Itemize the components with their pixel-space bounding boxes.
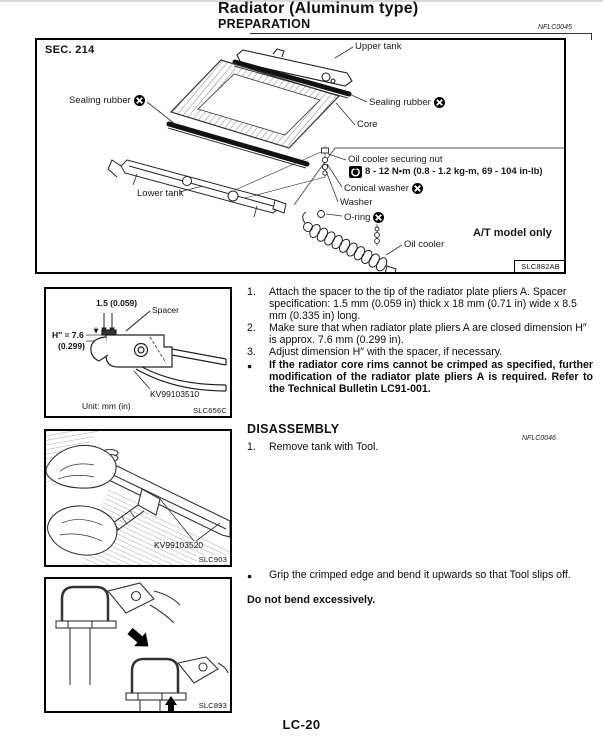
tool-number-label: KV99103520: [154, 540, 203, 550]
figure-pliers-spacer: 1.5 (0.059) Spacer H″ = 7.6 (0.299) KV99…: [44, 287, 232, 418]
step-text: Attach the spacer to the tip of the radi…: [269, 286, 593, 322]
bullet: ●: [247, 569, 269, 582]
figure-remove-tank: KV99103520 SLC903: [44, 429, 232, 567]
step-number: 1.: [247, 441, 269, 453]
label-at-model-only: A/T model only: [473, 228, 552, 238]
unit-note: Unit: mm (in): [82, 401, 131, 411]
bullet: ●: [247, 359, 269, 395]
label-o-ring: O-ring: [344, 212, 384, 223]
figure-code: SLC882AB: [514, 260, 564, 272]
label-core: Core: [357, 120, 378, 130]
torque-spec-row: 8 - 12 N•m (0.8 - 1.2 kg-m, 69 - 104 in-…: [349, 166, 543, 178]
replace-part-icon: [434, 97, 445, 108]
step-number: 1.: [247, 286, 269, 322]
page-number: LC-20: [0, 717, 603, 732]
spacer-label: Spacer: [152, 305, 179, 315]
bend-edge-art: [46, 579, 230, 711]
label-upper-tank: Upper tank: [355, 42, 401, 52]
section-code: NFLC0045: [538, 24, 572, 31]
replace-part-icon: [373, 212, 384, 223]
dimension-label: 1.5 (0.059): [96, 298, 137, 308]
replace-part-icon: [134, 95, 145, 106]
lower-tank-art: [108, 160, 286, 217]
step-text: Remove tank with Tool.: [269, 441, 593, 453]
section-heading-disassembly: DISASSEMBLY: [247, 422, 339, 436]
heading-rule-tick: [591, 33, 592, 40]
step-number: 3.: [247, 346, 269, 358]
label-oil-cooler-securing-nut: Oil cooler securing nut: [348, 155, 443, 165]
note-text: If the radiator core rims cannot be crim…: [269, 359, 593, 395]
preparation-steps: 1. Attach the spacer to the tip of the r…: [247, 286, 593, 395]
manual-page: Radiator (Aluminum type) PREPARATION NFL…: [0, 0, 603, 745]
figure-code: SLC656C: [191, 406, 229, 415]
step-text: Make sure that when radiator plate plier…: [269, 322, 593, 346]
h-dimension-label-2: (0.299): [58, 341, 85, 351]
tool-number-label: KV99103510: [150, 389, 199, 399]
replace-part-icon: [412, 183, 423, 194]
prep-note: ● If the radiator core rims cannot be cr…: [247, 359, 593, 395]
figure-bend-edge: SLC893: [44, 577, 232, 713]
warning-text: Do not bend excessively.: [247, 594, 375, 606]
disassembly-note: ● Grip the crimped edge and bend it upwa…: [247, 569, 593, 582]
prep-step-1: 1. Attach the spacer to the tip of the r…: [247, 286, 593, 322]
pliers-art: [46, 289, 230, 416]
label-lower-tank: Lower tank: [137, 189, 183, 199]
sec-label: SEC. 214: [45, 44, 94, 56]
torque-wrench-icon: [349, 166, 362, 178]
figure-code: SLC893: [197, 701, 229, 710]
note-text: Grip the crimped edge and bend it upward…: [269, 569, 593, 582]
prep-step-2: 2. Make sure that when radiator plate pl…: [247, 322, 593, 346]
h-dimension-label: H″ = 7.6: [52, 330, 84, 340]
label-oil-cooler: Oil cooler: [404, 240, 444, 250]
page-title: Radiator (Aluminum type): [218, 0, 418, 18]
label-sealing-rubber-left: Sealing rubber: [69, 95, 145, 106]
main-figure: SEC. 214 Upper tank Sealing rubber Core …: [35, 38, 566, 274]
step-number: 2.: [247, 322, 269, 346]
section-heading-preparation: PREPARATION: [218, 17, 310, 31]
disassembly-step: 1. Remove tank with Tool.: [247, 441, 593, 453]
step-text: Adjust dimension H″ with the spacer, if …: [269, 346, 593, 358]
label-sealing-rubber-right: Sealing rubber: [369, 97, 445, 108]
heading-rule: [250, 33, 592, 34]
label-conical-washer: Conical washer: [344, 183, 423, 194]
figure-code: SLC903: [197, 555, 229, 564]
prep-step-3: 3. Adjust dimension H″ with the spacer, …: [247, 346, 593, 358]
label-washer: Washer: [340, 198, 372, 208]
